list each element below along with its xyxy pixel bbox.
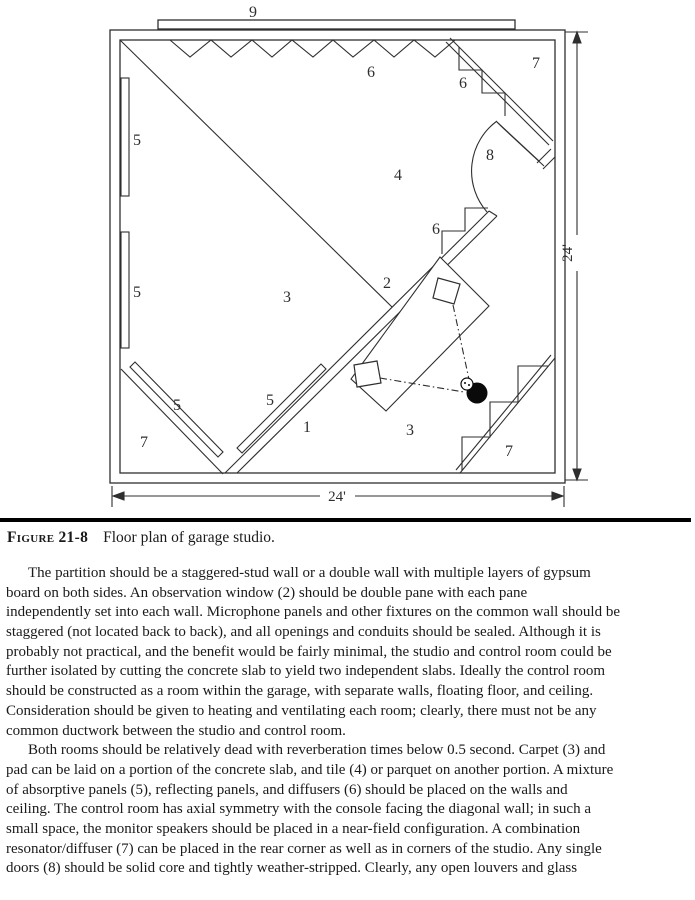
figure-caption: Figure 21-8Floor plan of garage studio. [7, 529, 695, 547]
paragraph-line: ceiling. The control room has axial symm… [6, 800, 691, 820]
monitor-speaker-2 [354, 361, 381, 387]
label-resonator-bottom-left: 7 [140, 434, 148, 451]
label-panel-left-upper: 5 [133, 132, 141, 149]
paragraph-line: of absorptive panels (5), reflecting pan… [6, 781, 691, 801]
document-page: 24' 24' 9 6 6 7 5 8 4 6 2 [0, 0, 695, 900]
body-text: The partition should be a staggered-stud… [6, 564, 691, 879]
paragraph-line: resonator/diffuser (7) can be placed in … [6, 840, 691, 860]
label-ridge: 9 [249, 4, 257, 21]
paragraph-line: common ductwork between the studio and c… [6, 722, 691, 742]
dim-width-label: 24' [328, 489, 346, 505]
label-partition-wall: 1 [303, 419, 311, 436]
paragraph-line: staggered (not located back to back), an… [6, 623, 691, 643]
paragraph-line: probably not practical, and the benefit … [6, 643, 691, 663]
label-resonator-top-right: 7 [532, 55, 540, 72]
caption-rule [0, 518, 691, 522]
partition-wall [225, 149, 555, 473]
paragraph-line: Consideration should be given to heating… [6, 702, 691, 722]
door-swing-arc [472, 121, 497, 212]
paragraph-line: Both rooms should be relatively dead wit… [6, 741, 691, 761]
paragraph-line: independently set into each wall. Microp… [6, 603, 691, 623]
listener-head [461, 378, 488, 404]
ceiling-diffusers [170, 40, 455, 57]
label-door: 8 [486, 147, 494, 164]
label-panel-corner-left: 5 [173, 397, 181, 414]
paragraph-line: pad can be laid on a portion of the conc… [6, 761, 691, 781]
floor-plan-svg: 24' 24' 9 6 6 7 5 8 4 6 2 [0, 0, 695, 515]
label-carpet-control-room: 3 [406, 422, 414, 439]
figure-caption-text: Floor plan of garage studio. [103, 529, 275, 546]
wall-panel-left-lower [121, 232, 129, 348]
label-carpet-studio: 3 [283, 289, 291, 306]
label-tile-area: 4 [394, 167, 402, 184]
label-corner-diffuser-top: 6 [459, 75, 467, 92]
label-wall-diffuser: 6 [432, 221, 440, 238]
paragraph-line: doors (8) should be solid core and tight… [6, 859, 691, 879]
floor-boundary-line [120, 40, 392, 307]
label-ceiling-diffusers: 6 [367, 64, 375, 81]
label-panel-left-lower: 5 [133, 284, 141, 301]
wall-panel-left-upper [121, 78, 129, 196]
ridge-board [158, 20, 515, 29]
paragraph-line: should be constructed as a room within t… [6, 682, 691, 702]
label-panel-partition: 5 [266, 392, 274, 409]
paragraph-line: The partition should be a staggered-stud… [6, 564, 691, 584]
outer-wall [110, 30, 565, 483]
wall-panel-partition [237, 364, 326, 453]
figure-caption-label: Figure 21-8 [7, 529, 88, 546]
label-resonator-bottom-right: 7 [505, 443, 513, 460]
dim-height-label: 24' [560, 244, 576, 262]
floor-plan-figure: 24' 24' 9 6 6 7 5 8 4 6 2 [0, 0, 695, 515]
paragraph-line: small space, the monitor speakers should… [6, 820, 691, 840]
corner-wall-bottom-left [121, 369, 223, 474]
door-leaf [497, 122, 544, 166]
paragraph-line: further isolated by cutting the concrete… [6, 662, 691, 682]
paragraph-line: board on both sides. An observation wind… [6, 584, 691, 604]
label-observation-window: 2 [383, 275, 391, 292]
